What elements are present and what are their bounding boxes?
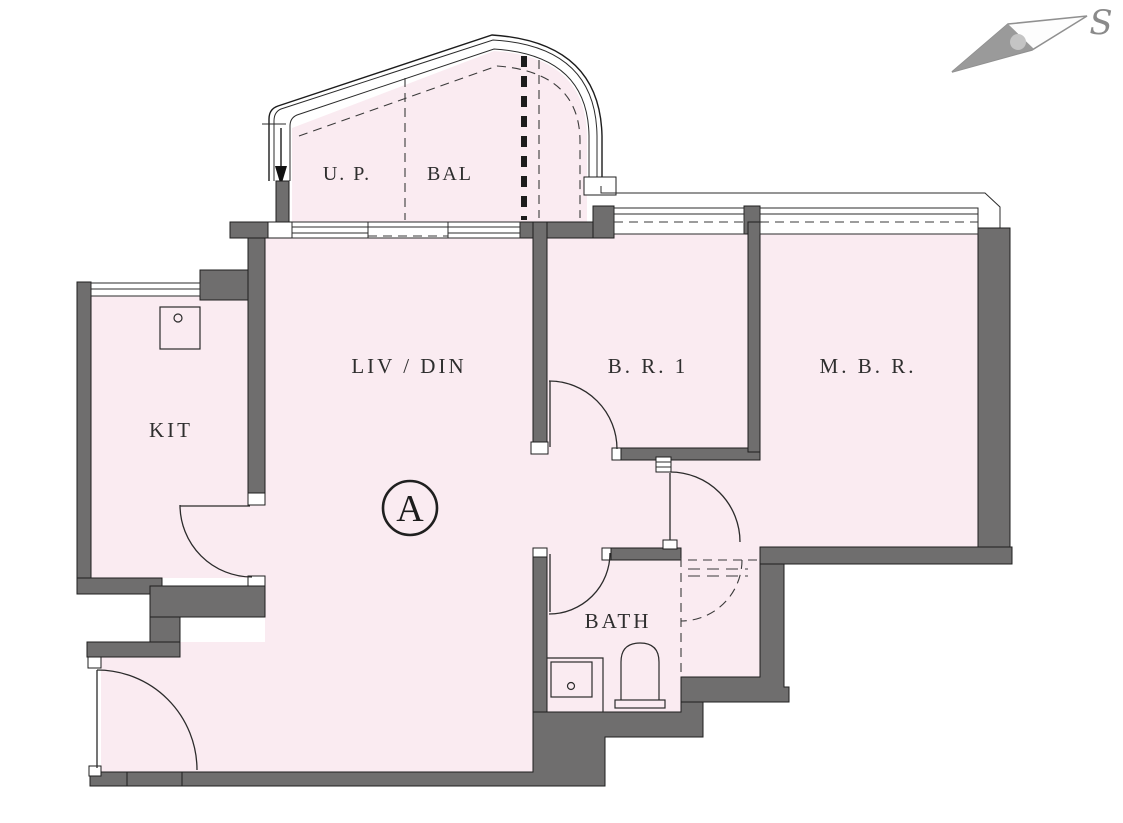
wall-living-top-left bbox=[230, 222, 268, 238]
room-label-bal: BAL bbox=[427, 163, 473, 185]
room-label-bath: BATH bbox=[585, 609, 652, 633]
kitchen-doorway-floor bbox=[248, 503, 265, 578]
wall-entry-step bbox=[150, 617, 180, 642]
compass-south-label: S bbox=[1089, 3, 1112, 43]
door-jamb bbox=[248, 493, 265, 505]
bathroom-floor bbox=[547, 558, 681, 712]
unit-badge-letter: A bbox=[396, 488, 424, 530]
floor-plan-page: U. P. BAL LIV / DIN B. R. 1 M. B. R. KIT… bbox=[0, 0, 1123, 823]
wall-entry-block bbox=[150, 586, 265, 617]
corridor-floor bbox=[533, 448, 760, 558]
closet-floor bbox=[681, 548, 760, 677]
door-jamb bbox=[533, 548, 547, 557]
door-jamb bbox=[531, 442, 548, 454]
wall-kitchen-right bbox=[248, 238, 265, 493]
door-jamb bbox=[88, 657, 101, 668]
compass-pivot bbox=[1010, 34, 1026, 50]
wall-step-block bbox=[593, 206, 614, 238]
room-label-kit: KIT bbox=[149, 418, 193, 442]
room-label-up: U. P. bbox=[323, 163, 371, 185]
wall-kitchen-bottom bbox=[77, 578, 162, 594]
door-jamb bbox=[89, 766, 101, 776]
room-label-br1: B. R. 1 bbox=[608, 354, 689, 378]
door-jamb bbox=[656, 457, 671, 472]
wall-mbr-bottom bbox=[760, 547, 1012, 564]
master-bedroom-window-band bbox=[760, 208, 978, 234]
balcony-right-bracket bbox=[584, 177, 616, 195]
wall-mbr-left bbox=[748, 222, 760, 452]
door-jamb bbox=[612, 448, 621, 460]
floor-plan-drawing: U. P. BAL LIV / DIN B. R. 1 M. B. R. KIT… bbox=[0, 0, 1123, 823]
wall-bath-top bbox=[610, 548, 681, 560]
room-label-livdin: LIV / DIN bbox=[351, 354, 466, 378]
wall-br1-left bbox=[533, 222, 547, 442]
bedroom1-floor bbox=[547, 232, 750, 448]
master-bedroom-floor bbox=[760, 232, 978, 547]
room-label-mbr: M. B. R. bbox=[820, 354, 917, 378]
bedroom1-window-band bbox=[614, 208, 744, 234]
living-top-left-jamb bbox=[268, 222, 292, 238]
wall-living-top-right bbox=[520, 222, 593, 238]
balcony-wall-stub bbox=[276, 181, 289, 222]
wall-kitchen-left bbox=[77, 282, 91, 592]
wall-bath-left bbox=[533, 548, 547, 712]
door-jamb bbox=[663, 540, 677, 549]
wall-br1-bottom bbox=[620, 448, 760, 460]
wall-entry-top bbox=[87, 642, 180, 657]
wall-mbr-right bbox=[978, 228, 1010, 564]
